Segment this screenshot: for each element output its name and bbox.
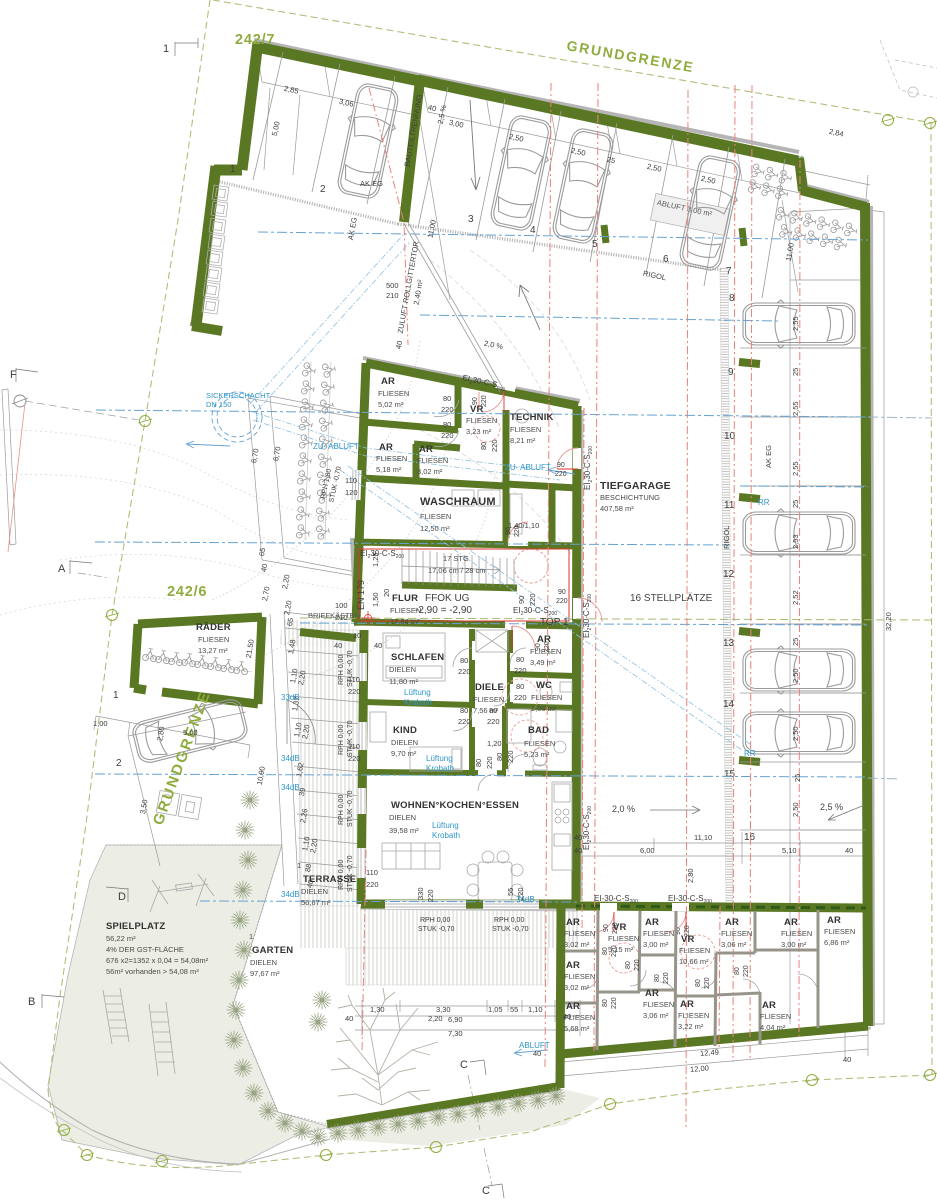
svg-text:2,50: 2,50 bbox=[570, 146, 586, 158]
svg-text:D: D bbox=[118, 891, 126, 903]
svg-text:7,30: 7,30 bbox=[448, 1029, 463, 1038]
svg-text:2,53: 2,53 bbox=[791, 534, 800, 549]
svg-text:BESCHICHTUNG: BESCHICHTUNG bbox=[600, 493, 660, 502]
svg-text:1,50: 1,50 bbox=[371, 592, 380, 607]
svg-text:9,70 m²: 9,70 m² bbox=[391, 749, 417, 758]
svg-text:1: 1 bbox=[249, 932, 253, 941]
svg-text:RIGOL: RIGOL bbox=[722, 526, 731, 549]
svg-text:RPH 0,00: RPH 0,00 bbox=[338, 725, 345, 755]
svg-text:3,22 m²: 3,22 m² bbox=[678, 1022, 704, 1031]
svg-text:FLIESEN: FLIESEN bbox=[564, 929, 595, 938]
svg-text:FLIESEN: FLIESEN bbox=[378, 389, 409, 398]
svg-text:STUK -0,70: STUK -0,70 bbox=[347, 790, 354, 827]
svg-text:2,85: 2,85 bbox=[283, 84, 299, 96]
svg-text:97,67 m²: 97,67 m² bbox=[250, 969, 280, 978]
svg-text:AR: AR bbox=[827, 915, 841, 926]
svg-text:13: 13 bbox=[723, 638, 735, 649]
svg-text:FLIESEN: FLIESEN bbox=[530, 647, 561, 656]
svg-text:DIELEN: DIELEN bbox=[389, 813, 416, 822]
svg-text:Lüftung: Lüftung bbox=[426, 754, 453, 763]
svg-text:39: 39 bbox=[297, 787, 307, 797]
svg-text:25: 25 bbox=[606, 155, 616, 166]
svg-text:FLIESEN: FLIESEN bbox=[679, 946, 710, 955]
svg-text:TIEFGARAGE: TIEFGARAGE bbox=[600, 480, 671, 492]
svg-text:FLIESEN: FLIESEN bbox=[473, 695, 504, 704]
svg-text:12,50 m²: 12,50 m² bbox=[420, 524, 450, 533]
svg-text:12: 12 bbox=[723, 569, 735, 580]
svg-text:F: F bbox=[10, 369, 17, 381]
svg-text:10,66 m²: 10,66 m² bbox=[679, 957, 709, 966]
svg-text:C: C bbox=[482, 1185, 490, 1197]
svg-text:80: 80 bbox=[479, 442, 488, 450]
svg-text:40: 40 bbox=[345, 1014, 353, 1023]
svg-text:AR: AR bbox=[566, 917, 580, 928]
svg-text:AR: AR bbox=[419, 444, 433, 455]
svg-text:1,30: 1,30 bbox=[370, 1005, 385, 1014]
svg-text:220: 220 bbox=[634, 959, 641, 971]
svg-text:210: 210 bbox=[386, 291, 399, 300]
svg-text:FLIESEN: FLIESEN bbox=[760, 1012, 791, 1021]
svg-text:110: 110 bbox=[366, 868, 378, 877]
svg-text:80: 80 bbox=[625, 961, 632, 969]
svg-text:220: 220 bbox=[514, 666, 527, 675]
svg-text:6,00: 6,00 bbox=[640, 846, 655, 855]
svg-text:STUK -0,70: STUK -0,70 bbox=[347, 720, 354, 757]
svg-text:80: 80 bbox=[474, 759, 483, 767]
svg-text:220: 220 bbox=[528, 593, 537, 606]
svg-text:2,50: 2,50 bbox=[646, 162, 662, 174]
svg-text:80: 80 bbox=[654, 974, 661, 982]
svg-text:40: 40 bbox=[427, 103, 437, 114]
svg-text:2,50: 2,50 bbox=[791, 668, 800, 683]
svg-text:2,50: 2,50 bbox=[508, 132, 524, 144]
svg-text:80: 80 bbox=[734, 967, 741, 975]
svg-text:2,52: 2,52 bbox=[791, 590, 800, 605]
svg-text:220: 220 bbox=[487, 717, 500, 726]
svg-text:220: 220 bbox=[555, 471, 567, 478]
svg-text:90: 90 bbox=[517, 596, 526, 604]
svg-text:RR: RR bbox=[744, 749, 756, 758]
svg-text:FLIESEN: FLIESEN bbox=[643, 929, 674, 938]
svg-text:80: 80 bbox=[695, 979, 702, 987]
svg-text:220: 220 bbox=[704, 977, 711, 989]
svg-text:8,21 m²: 8,21 m² bbox=[510, 436, 536, 445]
svg-text:2,06 m²: 2,06 m² bbox=[531, 704, 557, 713]
svg-text:RIGOL: RIGOL bbox=[642, 269, 667, 283]
svg-text:FLIESEN: FLIESEN bbox=[608, 934, 639, 943]
svg-text:1,00: 1,00 bbox=[93, 719, 108, 728]
svg-text:220: 220 bbox=[611, 997, 618, 1009]
svg-text:AR: AR bbox=[762, 1000, 776, 1011]
svg-text:EI230-C-S200: EI230-C-S200 bbox=[360, 549, 404, 560]
svg-text:2,50: 2,50 bbox=[791, 726, 800, 741]
svg-text:5,15 m²: 5,15 m² bbox=[608, 945, 634, 954]
svg-text:2,0 %: 2,0 % bbox=[483, 339, 504, 352]
svg-text:FLIESEN: FLIESEN bbox=[531, 693, 562, 702]
svg-text:2,20: 2,20 bbox=[428, 1014, 443, 1023]
svg-text:25: 25 bbox=[791, 500, 800, 508]
svg-text:2,0 %: 2,0 % bbox=[612, 804, 635, 814]
svg-text:3,23 m²: 3,23 m² bbox=[466, 427, 492, 436]
svg-text:FLIESEN: FLIESEN bbox=[824, 927, 855, 936]
svg-text:3,02 m²: 3,02 m² bbox=[417, 467, 443, 476]
svg-text:ZU- ABLUFT: ZU- ABLUFT bbox=[505, 463, 551, 472]
svg-text:FLIESEN: FLIESEN bbox=[678, 1011, 709, 1020]
svg-text:1,05: 1,05 bbox=[488, 1005, 503, 1014]
svg-text:2,50: 2,50 bbox=[700, 174, 716, 186]
svg-text:11: 11 bbox=[724, 500, 735, 511]
svg-text:100: 100 bbox=[335, 601, 348, 610]
svg-text:90: 90 bbox=[558, 589, 566, 596]
svg-text:1: 1 bbox=[297, 861, 301, 870]
svg-text:AK EG: AK EG bbox=[346, 216, 359, 240]
svg-text:110: 110 bbox=[345, 476, 357, 485]
svg-text:500: 500 bbox=[386, 281, 399, 290]
svg-text:3,50: 3,50 bbox=[138, 799, 149, 815]
svg-text:GARTEN: GARTEN bbox=[252, 945, 293, 956]
svg-text:88: 88 bbox=[303, 863, 313, 873]
svg-text:2,20: 2,20 bbox=[280, 574, 291, 590]
svg-text:AR: AR bbox=[645, 917, 659, 928]
svg-text:5,18 m²: 5,18 m² bbox=[376, 465, 402, 474]
svg-text:32,20: 32,20 bbox=[884, 612, 893, 631]
svg-text:14: 14 bbox=[723, 699, 735, 710]
svg-text:WOHNEN°KOCHEN°ESSEN: WOHNEN°KOCHEN°ESSEN bbox=[391, 800, 519, 811]
svg-text:3,02 m²: 3,02 m² bbox=[564, 983, 590, 992]
svg-text:4,04 m²: 4,04 m² bbox=[760, 1023, 786, 1032]
svg-text:BAUTEILTRENNUNG: BAUTEILTRENNUNG bbox=[403, 94, 425, 168]
svg-text:3,00 m²: 3,00 m² bbox=[781, 940, 807, 949]
svg-text:AR: AR bbox=[379, 442, 393, 453]
svg-text:1,48: 1,48 bbox=[286, 639, 297, 655]
svg-text:DIELE: DIELE bbox=[475, 682, 504, 693]
svg-text:330: 330 bbox=[416, 887, 425, 900]
svg-text:5,02 m²: 5,02 m² bbox=[378, 400, 404, 409]
svg-text:FLUR: FLUR bbox=[392, 593, 418, 604]
svg-text:220: 220 bbox=[485, 756, 494, 769]
svg-text:40: 40 bbox=[843, 1055, 851, 1064]
svg-text:DIELEN: DIELEN bbox=[389, 665, 416, 674]
svg-text:RÄDER: RÄDER bbox=[196, 622, 231, 633]
svg-text:242/6: 242/6 bbox=[167, 584, 207, 600]
svg-text:65: 65 bbox=[257, 547, 267, 557]
svg-text:VR: VR bbox=[470, 404, 484, 415]
svg-text:80: 80 bbox=[495, 753, 504, 761]
svg-text:EN 179: EN 179 bbox=[356, 580, 366, 610]
svg-text:6,90: 6,90 bbox=[448, 1015, 463, 1024]
svg-text:FLIESEN: FLIESEN bbox=[781, 929, 812, 938]
svg-text:2,5 %: 2,5 % bbox=[436, 104, 449, 125]
svg-text:FLIESEN: FLIESEN bbox=[564, 972, 595, 981]
svg-text:220: 220 bbox=[663, 972, 670, 984]
svg-text:C: C bbox=[460, 1059, 468, 1071]
svg-text:90: 90 bbox=[557, 462, 565, 469]
svg-text:3,00 m²: 3,00 m² bbox=[643, 940, 669, 949]
svg-text:B: B bbox=[28, 996, 35, 1008]
svg-text:BAD: BAD bbox=[528, 725, 549, 736]
svg-text:80: 80 bbox=[443, 420, 451, 429]
svg-text:6,86 m²: 6,86 m² bbox=[824, 938, 850, 947]
svg-text:220: 220 bbox=[458, 667, 471, 676]
svg-text:12,00: 12,00 bbox=[690, 1063, 709, 1074]
svg-text:3,06: 3,06 bbox=[338, 97, 354, 109]
svg-text:3,30: 3,30 bbox=[436, 1005, 451, 1014]
svg-text:13,27 m²: 13,27 m² bbox=[198, 646, 228, 655]
svg-text:34dB: 34dB bbox=[281, 890, 300, 899]
svg-text:2,50: 2,50 bbox=[791, 802, 800, 817]
svg-text:3,49 m²: 3,49 m² bbox=[530, 658, 556, 667]
svg-text:40: 40 bbox=[305, 879, 315, 889]
svg-text:FLIESEN: FLIESEN bbox=[390, 606, 421, 615]
svg-text:40: 40 bbox=[845, 846, 853, 855]
svg-text:1: 1 bbox=[230, 164, 236, 175]
svg-text:RPH 0,00: RPH 0,00 bbox=[420, 917, 450, 924]
svg-text:DN 150: DN 150 bbox=[206, 400, 231, 409]
svg-text:10: 10 bbox=[353, 631, 361, 640]
svg-text:FLIESEN: FLIESEN bbox=[466, 416, 497, 425]
svg-text:5,10: 5,10 bbox=[782, 846, 797, 855]
svg-text:-2,90 = -2,90: -2,90 = -2,90 bbox=[415, 605, 472, 616]
svg-text:3,02 m²: 3,02 m² bbox=[564, 940, 590, 949]
svg-text:220: 220 bbox=[426, 889, 435, 902]
svg-text:65: 65 bbox=[285, 617, 295, 627]
svg-text:11,00: 11,00 bbox=[425, 219, 438, 239]
svg-text:2,80: 2,80 bbox=[155, 726, 166, 742]
svg-text:7,56 m²: 7,56 m² bbox=[473, 706, 499, 715]
svg-text:40: 40 bbox=[394, 340, 405, 350]
svg-text:56,22 m²: 56,22 m² bbox=[106, 934, 136, 943]
svg-text:Krobath: Krobath bbox=[432, 831, 460, 840]
svg-text:2,80: 2,80 bbox=[686, 868, 695, 883]
svg-text:25: 25 bbox=[793, 774, 802, 782]
svg-text:2: 2 bbox=[320, 184, 326, 195]
svg-text:40: 40 bbox=[259, 563, 269, 573]
svg-text:80: 80 bbox=[443, 394, 451, 403]
svg-text:Lüftung: Lüftung bbox=[432, 821, 459, 830]
svg-text:3,06 m²: 3,06 m² bbox=[721, 940, 747, 949]
svg-text:40: 40 bbox=[574, 846, 582, 855]
svg-text:FLIESEN: FLIESEN bbox=[198, 635, 229, 644]
svg-text:7: 7 bbox=[726, 266, 732, 277]
svg-text:11,10: 11,10 bbox=[694, 833, 712, 842]
svg-text:676 x2=1352 x 0,04 = 54,08m²: 676 x2=1352 x 0,04 = 54,08m² bbox=[106, 956, 209, 965]
svg-text:6: 6 bbox=[663, 254, 669, 265]
svg-text:2,55: 2,55 bbox=[791, 316, 800, 331]
svg-text:120: 120 bbox=[345, 488, 358, 497]
svg-text:21,50: 21,50 bbox=[244, 639, 256, 659]
svg-text:12,49: 12,49 bbox=[700, 1047, 719, 1058]
svg-text:RPH 0,00: RPH 0,00 bbox=[494, 917, 524, 924]
svg-text:80: 80 bbox=[460, 706, 468, 715]
svg-text:DIELEN: DIELEN bbox=[301, 887, 328, 896]
svg-text:Krobath: Krobath bbox=[426, 764, 454, 773]
svg-text:1,25: 1,25 bbox=[371, 552, 380, 567]
svg-text:56m² vorhanden > 54,08 m³: 56m² vorhanden > 54,08 m³ bbox=[106, 967, 199, 976]
svg-text:WC: WC bbox=[536, 680, 552, 691]
svg-text:2,55: 2,55 bbox=[791, 461, 800, 476]
svg-text:5,00: 5,00 bbox=[183, 728, 198, 737]
svg-text:3,00: 3,00 bbox=[448, 118, 464, 130]
svg-text:40: 40 bbox=[334, 641, 342, 650]
svg-text:VR: VR bbox=[681, 934, 695, 945]
svg-text:AR: AR bbox=[381, 376, 395, 387]
svg-text:6,70: 6,70 bbox=[249, 448, 260, 464]
svg-text:5,00: 5,00 bbox=[270, 121, 282, 137]
svg-text:1: 1 bbox=[163, 43, 169, 55]
svg-text:17,84 m²: 17,84 m² bbox=[390, 617, 420, 626]
svg-text:11,80 m²: 11,80 m² bbox=[389, 677, 419, 686]
svg-text:220: 220 bbox=[490, 439, 499, 452]
svg-text:GRUNDGRENZE: GRUNDGRENZE bbox=[565, 37, 695, 75]
svg-text:17,06 cm / 28 cm: 17,06 cm / 28 cm bbox=[428, 566, 486, 575]
svg-text:AR: AR bbox=[537, 634, 551, 645]
svg-text:2,55: 2,55 bbox=[791, 401, 800, 416]
svg-text:TOP 1: TOP 1 bbox=[540, 617, 569, 628]
svg-text:2,20: 2,20 bbox=[282, 600, 293, 616]
svg-text:ZU- ABLUFT: ZU- ABLUFT bbox=[313, 442, 359, 451]
svg-text:FFOK UG: FFOK UG bbox=[425, 593, 470, 604]
svg-text:80: 80 bbox=[516, 655, 524, 664]
svg-text:2,70: 2,70 bbox=[260, 586, 271, 602]
svg-text:220: 220 bbox=[458, 717, 471, 726]
svg-text:40: 40 bbox=[563, 1012, 571, 1021]
svg-text:80: 80 bbox=[602, 999, 609, 1007]
svg-text:RPH 0,00: RPH 0,00 bbox=[338, 655, 345, 685]
svg-text:407,58 m²: 407,58 m² bbox=[600, 504, 634, 513]
svg-text:AR: AR bbox=[566, 1001, 580, 1012]
svg-text:STUK -0,70: STUK -0,70 bbox=[492, 926, 529, 933]
svg-text:220: 220 bbox=[441, 405, 454, 414]
svg-text:FLIESEN: FLIESEN bbox=[420, 512, 451, 521]
svg-text:220: 220 bbox=[506, 750, 515, 763]
svg-text:34dB: 34dB bbox=[281, 754, 300, 763]
svg-text:BRIEFKÄSTEN: BRIEFKÄSTEN bbox=[308, 611, 360, 620]
svg-text:AR: AR bbox=[725, 917, 739, 928]
svg-text:17 STG: 17 STG bbox=[443, 554, 469, 563]
svg-text:5,23 m²: 5,23 m² bbox=[524, 750, 550, 759]
svg-text:3: 3 bbox=[468, 214, 474, 225]
svg-text:A: A bbox=[58, 563, 66, 575]
svg-text:4: 4 bbox=[530, 225, 536, 236]
svg-text:39,58 m²: 39,58 m² bbox=[389, 826, 419, 835]
svg-text:90: 90 bbox=[603, 924, 610, 932]
svg-text:16 STELLPLÄTZE: 16 STELLPLÄTZE bbox=[630, 592, 713, 604]
svg-text:EI230-C-S200: EI230-C-S200 bbox=[582, 806, 593, 850]
svg-text:2,84: 2,84 bbox=[828, 127, 844, 139]
svg-text:25: 25 bbox=[791, 368, 800, 376]
svg-text:SCHLAFEN: SCHLAFEN bbox=[391, 652, 444, 663]
svg-text:220: 220 bbox=[366, 880, 379, 889]
svg-text:STUK -0,70: STUK -0,70 bbox=[347, 650, 354, 687]
svg-text:TECHNIK: TECHNIK bbox=[510, 412, 554, 423]
svg-text:34dB: 34dB bbox=[516, 895, 535, 904]
svg-text:FLIESEN: FLIESEN bbox=[376, 454, 407, 463]
svg-text:220: 220 bbox=[743, 965, 750, 977]
svg-text:FLIESEN: FLIESEN bbox=[721, 929, 752, 938]
svg-text:25: 25 bbox=[791, 638, 800, 646]
svg-text:242/7: 242/7 bbox=[235, 32, 275, 48]
svg-text:1: 1 bbox=[113, 690, 119, 701]
svg-text:KIND: KIND bbox=[393, 725, 417, 736]
svg-text:80: 80 bbox=[516, 682, 524, 691]
svg-text:STUK -0,70: STUK -0,70 bbox=[418, 926, 455, 933]
svg-text:220: 220 bbox=[348, 687, 361, 696]
svg-text:AK EG: AK EG bbox=[360, 179, 383, 188]
svg-text:FLIESEN: FLIESEN bbox=[643, 1000, 674, 1009]
svg-text:3,06 m²: 3,06 m² bbox=[643, 1011, 669, 1020]
svg-text:WASCHRAUM: WASCHRAUM bbox=[420, 496, 496, 508]
svg-text:220: 220 bbox=[441, 431, 454, 440]
svg-text:AR: AR bbox=[645, 988, 659, 999]
svg-text:220: 220 bbox=[556, 598, 568, 605]
svg-text:EI230-C-S200: EI230-C-S200 bbox=[583, 446, 594, 490]
svg-text:Lüftung: Lüftung bbox=[404, 688, 431, 697]
svg-text:20: 20 bbox=[382, 589, 391, 597]
svg-text:40: 40 bbox=[533, 1049, 541, 1058]
svg-text:2: 2 bbox=[116, 758, 122, 769]
svg-text:1,20: 1,20 bbox=[487, 739, 502, 748]
svg-text:AR: AR bbox=[784, 917, 798, 928]
svg-text:220: 220 bbox=[514, 693, 527, 702]
svg-text:DIELEN: DIELEN bbox=[250, 958, 277, 967]
svg-text:9: 9 bbox=[728, 367, 734, 378]
svg-text:AR: AR bbox=[680, 999, 694, 1010]
svg-text:10,90: 10,90 bbox=[255, 766, 267, 786]
svg-text:56,67 m²: 56,67 m² bbox=[301, 898, 331, 907]
svg-text:AK EG: AK EG bbox=[764, 445, 773, 468]
svg-text:6,70: 6,70 bbox=[271, 446, 282, 462]
svg-text:1,40/1,10: 1,40/1,10 bbox=[508, 521, 539, 530]
svg-text:2,5 %: 2,5 % bbox=[820, 802, 843, 812]
svg-text:RPH 0,00: RPH 0,00 bbox=[338, 795, 345, 825]
svg-text:FLIESEN: FLIESEN bbox=[524, 739, 555, 748]
svg-text:EI230-C-S200: EI230-C-S200 bbox=[513, 606, 557, 617]
svg-text:40: 40 bbox=[574, 833, 582, 842]
svg-text:RR: RR bbox=[758, 498, 770, 507]
svg-text:40: 40 bbox=[374, 641, 382, 650]
svg-text:FLIESEN: FLIESEN bbox=[417, 456, 448, 465]
svg-text:80: 80 bbox=[460, 656, 468, 665]
svg-text:5,68 m²: 5,68 m² bbox=[564, 1024, 590, 1033]
svg-text:VR: VR bbox=[613, 922, 627, 933]
svg-text:SPIELPLATZ: SPIELPLATZ bbox=[106, 921, 165, 932]
svg-text:DIELEN: DIELEN bbox=[391, 738, 418, 747]
svg-text:Krobath: Krobath bbox=[404, 698, 432, 707]
svg-text:1,10: 1,10 bbox=[528, 1005, 543, 1014]
svg-text:55: 55 bbox=[510, 1005, 518, 1014]
svg-text:4% DER GST-FLÄCHE: 4% DER GST-FLÄCHE bbox=[106, 945, 184, 954]
svg-text:11,00: 11,00 bbox=[784, 242, 796, 262]
svg-text:SICKERSCHACHT: SICKERSCHACHT bbox=[206, 391, 271, 400]
svg-text:FLIESEN: FLIESEN bbox=[510, 425, 541, 434]
svg-text:AR: AR bbox=[566, 960, 580, 971]
svg-text:55: 55 bbox=[506, 888, 515, 896]
svg-text:16: 16 bbox=[744, 832, 756, 843]
